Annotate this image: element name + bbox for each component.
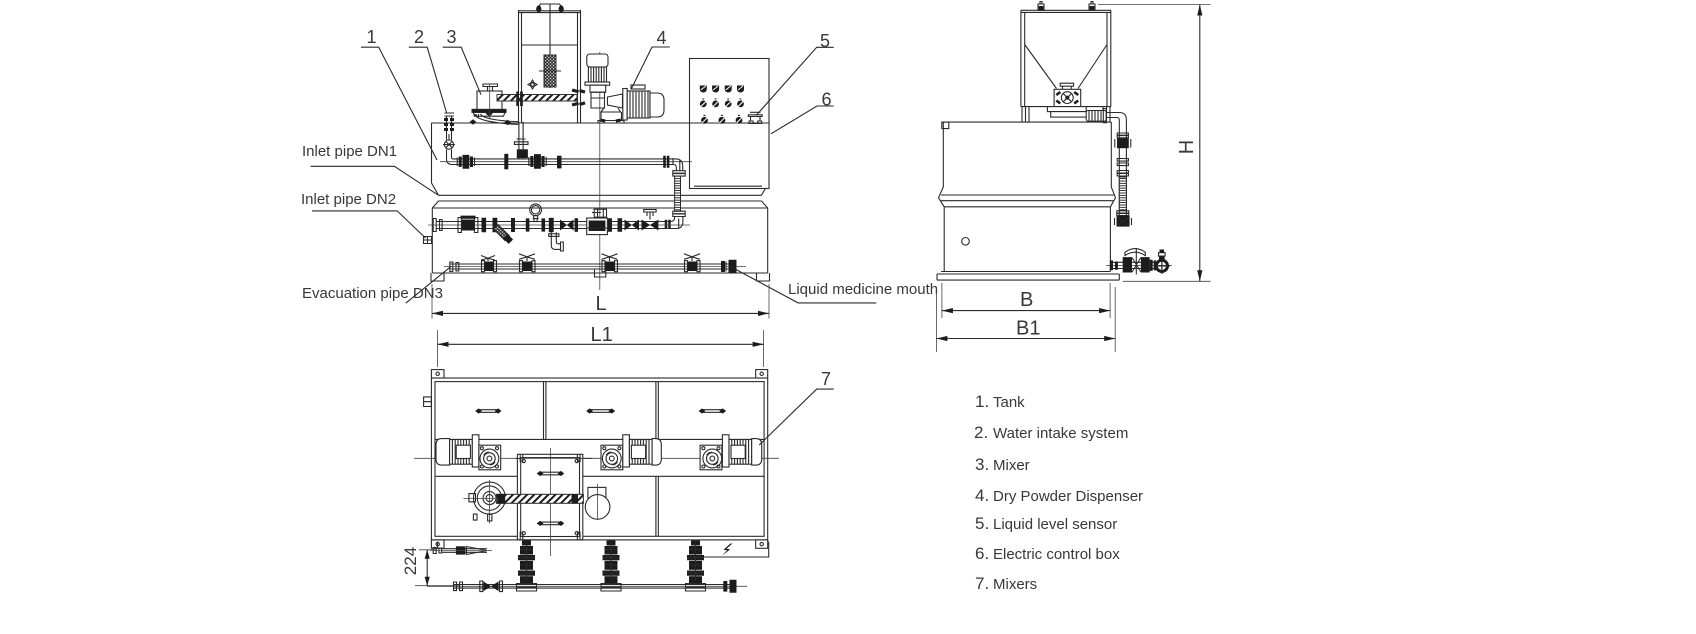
- svg-text:L: L: [596, 293, 607, 315]
- svg-text:H: H: [1176, 140, 1198, 154]
- svg-text:2: 2: [414, 27, 424, 47]
- svg-text:Dry Powder Dispenser: Dry Powder Dispenser: [993, 488, 1143, 505]
- svg-text:4.: 4.: [975, 486, 989, 505]
- svg-text:Inlet pipe DN1: Inlet pipe DN1: [302, 143, 397, 160]
- svg-text:4: 4: [657, 28, 667, 48]
- svg-text:5.: 5.: [975, 514, 989, 533]
- svg-text:Mixers: Mixers: [993, 576, 1037, 593]
- svg-text:224: 224: [401, 547, 420, 575]
- svg-text:Electric control box: Electric control box: [993, 546, 1120, 563]
- svg-text:1.: 1.: [975, 392, 989, 411]
- svg-text:L1: L1: [591, 324, 613, 346]
- svg-text:2.: 2.: [974, 423, 988, 442]
- svg-text:Liquid medicine mouth: Liquid medicine mouth: [788, 281, 938, 298]
- svg-text:7.: 7.: [975, 574, 989, 593]
- svg-text:3.: 3.: [975, 455, 989, 474]
- svg-text:B1: B1: [1016, 318, 1040, 340]
- svg-text:7: 7: [821, 369, 831, 389]
- svg-text:Mixer: Mixer: [993, 457, 1030, 474]
- svg-text:5: 5: [820, 31, 830, 51]
- svg-text:B: B: [1020, 289, 1033, 311]
- svg-text:Water intake system: Water intake system: [993, 425, 1128, 442]
- svg-text:Inlet pipe DN2: Inlet pipe DN2: [301, 191, 396, 208]
- svg-text:6.: 6.: [975, 544, 989, 563]
- svg-text:Liquid level sensor: Liquid level sensor: [993, 516, 1117, 533]
- svg-text:Evacuation pipe DN3: Evacuation pipe DN3: [302, 285, 443, 302]
- svg-text:1: 1: [367, 27, 377, 47]
- svg-text:3: 3: [447, 27, 457, 47]
- svg-text:Tank: Tank: [993, 394, 1025, 411]
